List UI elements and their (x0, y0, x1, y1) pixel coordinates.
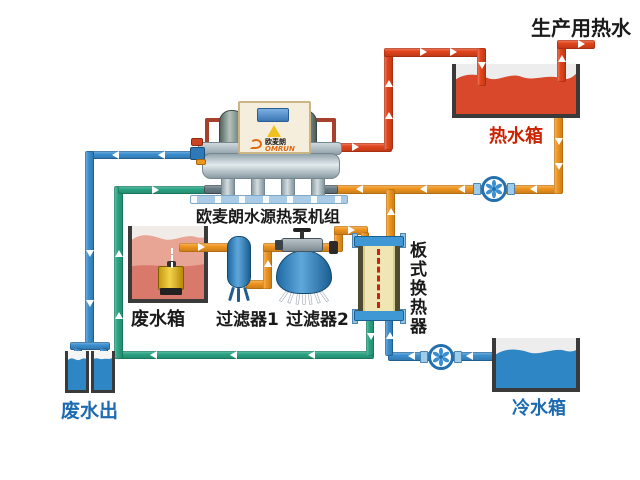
pipe-production-out (557, 40, 595, 49)
pump-flange (420, 351, 428, 363)
flow-arrow-up (386, 332, 394, 339)
flow-arrow-up (115, 250, 123, 257)
filter1-leg (237, 288, 240, 302)
control-display (257, 108, 289, 122)
filter2-leg (280, 291, 289, 302)
pump-flange (454, 351, 462, 363)
submersible-pump (158, 266, 184, 290)
flow-arrow-right (450, 48, 457, 56)
flow-arrow-right (352, 143, 359, 151)
flow-arrow-up (264, 260, 272, 267)
filter2-leg (320, 291, 329, 302)
filter1-label: 过滤器1 (216, 305, 279, 330)
production-hot-water-label: 生产用热水 (531, 12, 631, 41)
flow-arrow-down (86, 250, 94, 257)
flow-arrow-down (478, 62, 486, 69)
hot-water-tank-label: 热水箱 (489, 122, 543, 148)
waste-out-cup-right (91, 351, 115, 393)
flow-arrow-left (112, 151, 119, 159)
flow-arrow-up (385, 80, 393, 87)
filter2-valve (281, 238, 323, 252)
filter2-label: 过滤器2 (286, 305, 349, 330)
brand-swoosh-icon (250, 139, 262, 149)
flow-arrow-left (308, 351, 315, 359)
unit-leg (221, 178, 235, 196)
flow-arrow-left (420, 185, 427, 193)
pipe-source-rise (114, 186, 123, 359)
pipe-waste-discharge-top (89, 151, 205, 159)
submersible-pump-base (160, 288, 182, 295)
unit-port-fitting-red (191, 138, 203, 146)
plate-heat-exchanger-label: 板式换热器 (404, 241, 429, 337)
filter2-handle-stem (300, 231, 304, 239)
flow-arrow-right (348, 226, 355, 234)
pump-flange (473, 183, 481, 195)
refrigerant-pipe (205, 118, 209, 145)
pipe-hot-supply-top (384, 48, 484, 57)
refrigerant-pipe (332, 118, 336, 145)
flow-arrow-left (466, 352, 473, 360)
unit-leg (251, 178, 265, 196)
flow-arrow-down (367, 333, 375, 340)
filter1-leg (228, 287, 235, 301)
waste-out-cup-left (65, 351, 89, 393)
hx-bottom-header (354, 310, 404, 321)
flow-arrow-right (198, 243, 205, 251)
filter1-body (227, 236, 251, 288)
flow-arrow-down (555, 138, 563, 145)
unit-leg (281, 178, 295, 196)
heat-pump-unit-label: 欧麦朗水源热泵机组 (196, 203, 340, 227)
flow-arrow-right (578, 40, 585, 48)
hx-center-dashed-line (377, 249, 380, 308)
flow-arrow-left (458, 185, 465, 193)
waste-water-tank-label: 废水箱 (131, 305, 185, 331)
flow-arrow-left (158, 151, 165, 159)
pipe-hot-tank-outlet (554, 116, 563, 194)
pipe-waste-discharge-down (85, 151, 94, 347)
flow-arrow-right (420, 48, 427, 56)
cold-water-tank (492, 338, 580, 392)
cold-water (496, 338, 576, 388)
flow-arrow-left (408, 352, 415, 360)
unit-shell (202, 153, 340, 179)
flow-arrow-left (150, 351, 157, 359)
cold-loop-pump-icon (428, 344, 454, 370)
brand-name-en: OMRUN (265, 145, 295, 153)
pump-flange (507, 183, 515, 195)
flow-arrow-left (356, 185, 363, 193)
flow-arrow-down (555, 163, 563, 170)
filter2-tank (276, 250, 332, 294)
pipe-filter1-riser (263, 247, 272, 289)
flow-arrow-up (558, 55, 566, 62)
warning-triangle-icon (267, 125, 281, 137)
filter2-valve-flange (275, 240, 283, 250)
pipe-source-to-unit (118, 186, 206, 194)
waste-water-out-label: 废水出 (61, 396, 118, 423)
cold-water-tank-label: 冷水箱 (512, 394, 566, 420)
flow-arrow-up (387, 208, 395, 215)
pipe-hot-supply-riser (384, 48, 393, 150)
unit-port-fitting-orange (196, 159, 206, 165)
flow-arrow-right (152, 186, 159, 194)
pump-riser-hose (171, 248, 173, 268)
filter2-outlet-cap (329, 241, 338, 254)
filter1-leg (243, 287, 250, 301)
hot-loop-pump-icon (481, 176, 507, 202)
pipe-condenser-return (330, 185, 562, 194)
system-diagram: 热水箱 冷水箱 废水箱 过滤器1 过滤器2 板式换热器 (0, 0, 640, 480)
flow-arrow-left (230, 351, 237, 359)
unit-leg (311, 178, 325, 196)
flow-arrow-up (385, 112, 393, 119)
flow-arrow-up (115, 312, 123, 319)
flow-arrow-down (86, 300, 94, 307)
flow-arrow-left (530, 185, 537, 193)
